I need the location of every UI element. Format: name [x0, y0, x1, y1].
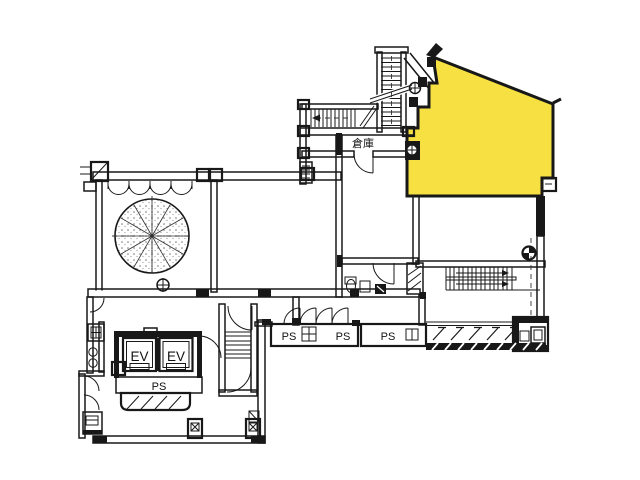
sink-icon: [360, 281, 370, 292]
highlighted-unit-outline: [407, 57, 553, 196]
storage-room: 倉庫: [300, 127, 420, 183]
round-feature-room: [108, 181, 192, 292]
elevator-1: EV: [123, 338, 156, 371]
lobby-east-door-arc: [199, 336, 221, 358]
ps-shaft-band: PS PS PS: [255, 292, 426, 346]
west-door-arcs: [84, 376, 99, 410]
elevator-2-label: EV: [167, 349, 185, 364]
floor-plan-canvas: 倉庫: [0, 0, 640, 480]
pier-column: [188, 419, 202, 438]
ps-shaft-1-label: PS: [282, 331, 297, 343]
roof-wedge: [426, 43, 443, 58]
restroom-door-arc: [373, 263, 394, 284]
ps-shaft-2-label: PS: [336, 331, 351, 343]
ps-core-label: PS: [152, 381, 167, 393]
ps-shaft-3-label: PS: [381, 331, 396, 343]
elevator-2: EV: [160, 338, 193, 371]
elevator-1-label: EV: [130, 349, 148, 364]
lobby-door-arc: [90, 298, 104, 312]
service-core: EV EV PS: [79, 297, 265, 443]
core-stair: [219, 304, 257, 396]
east-stair: [416, 196, 548, 351]
floor-plan-drawing: 倉庫: [0, 0, 640, 480]
storage-label: 倉庫: [352, 136, 374, 150]
planter: [121, 393, 190, 410]
storage-door-arc: [354, 154, 373, 173]
